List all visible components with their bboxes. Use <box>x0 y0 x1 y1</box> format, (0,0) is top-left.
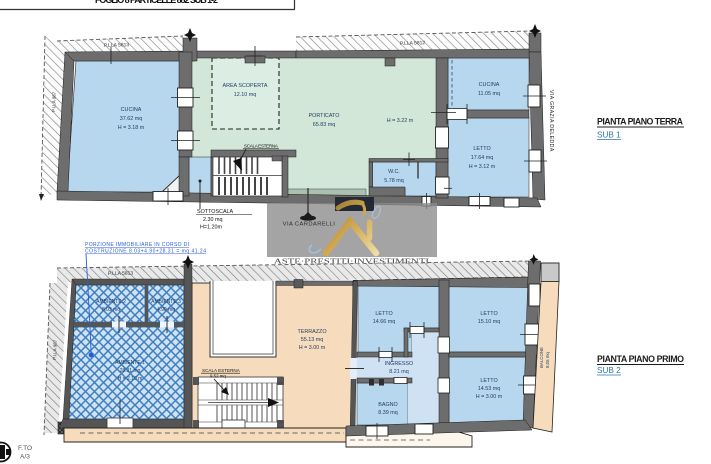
svg-text:65.83 mq: 65.83 mq <box>313 122 335 128</box>
svg-text:PIANTA PIANO PRIMO: PIANTA PIANO PRIMO <box>597 354 684 364</box>
svg-text:15.10 mq: 15.10 mq <box>478 319 500 325</box>
svg-text:SUB 2: SUB 2 <box>597 366 621 375</box>
svg-text:SCALA ESTERNA: SCALA ESTERNA <box>202 368 241 373</box>
svg-text:14.66 mq: 14.66 mq <box>373 319 395 325</box>
svg-text:14.53 mq: 14.53 mq <box>478 386 500 392</box>
svg-text:9.52 mq: 9.52 mq <box>210 373 226 378</box>
svg-text:INGRESSO: INGRESSO <box>385 361 413 367</box>
svg-text:ASTE·PRESTITI·INVESTIMENTI: ASTE·PRESTITI·INVESTIMENTI <box>274 258 430 266</box>
svg-text:BAGNO: BAGNO <box>378 402 397 408</box>
svg-text:AREA SCOPERTA: AREA SCOPERTA <box>222 83 267 89</box>
svg-text:12.10 mq: 12.10 mq <box>234 92 256 98</box>
svg-text:H=1.20m: H=1.20m <box>200 225 223 231</box>
svg-text:PIANTA PIANO TERRA: PIANTA PIANO TERRA <box>597 117 684 127</box>
svg-text:8.39 mq: 8.39 mq <box>378 410 397 416</box>
svg-text:2.30 mq: 2.30 mq <box>203 217 222 223</box>
svg-text:SCALA ESTERNA: SCALA ESTERNA <box>244 144 279 149</box>
svg-text:VIA GRAZIA DELEDDA: VIA GRAZIA DELEDDA <box>548 90 554 152</box>
svg-text:TERRAZZO: TERRAZZO <box>297 329 326 335</box>
svg-text:SOTTOSCALA: SOTTOSCALA <box>197 209 234 215</box>
svg-text:W.C.: W.C. <box>388 169 400 175</box>
svg-text:P.LLA 5812: P.LLA 5812 <box>400 40 426 47</box>
svg-text:37.62 mq: 37.62 mq <box>120 116 142 122</box>
svg-text:H = 3.00 m: H = 3.00 m <box>476 394 503 400</box>
svg-text:PORTICATO: PORTICATO <box>309 113 340 119</box>
svg-text:8.21 mq: 8.21 mq <box>389 369 408 375</box>
svg-text:SUB 1: SUB 1 <box>597 131 621 140</box>
svg-text:BALCONE: BALCONE <box>539 347 544 368</box>
svg-text:8.05 mq: 8.05 mq <box>545 352 550 368</box>
svg-text:P.LLA 5813: P.LLA 5813 <box>108 271 134 277</box>
svg-text:4.90 mq: 4.90 mq <box>157 307 175 313</box>
svg-text:F.TO: F.TO <box>18 445 32 452</box>
svg-text:FOGLIO 8 PARTICELLE 882 SUB 1-: FOGLIO 8 PARTICELLE 882 SUB 1-2 <box>95 0 218 5</box>
svg-text:AMBIENTE 2: AMBIENTE 2 <box>96 299 126 305</box>
svg-text:17.64 mq: 17.64 mq <box>471 155 493 161</box>
svg-text:A/3: A/3 <box>20 454 30 461</box>
svg-text:LETTO: LETTO <box>473 146 490 152</box>
svg-text:CUCINA: CUCINA <box>121 107 142 113</box>
svg-text:LETTO: LETTO <box>375 311 392 317</box>
svg-text:H = 3.00 m: H = 3.00 m <box>299 345 326 351</box>
svg-text:LETTO: LETTO <box>480 311 497 317</box>
svg-text:55.13 mq: 55.13 mq <box>301 337 323 343</box>
svg-text:P.LLA 987: P.LLA 987 <box>52 339 58 360</box>
svg-text:AMBIENTE 3: AMBIENTE 3 <box>151 299 181 305</box>
svg-text:H = 3.12 m: H = 3.12 m <box>469 164 496 170</box>
svg-text:8.03 mq: 8.03 mq <box>102 307 120 313</box>
svg-text:5.78 mq: 5.78 mq <box>384 178 403 184</box>
svg-text:LETTO: LETTO <box>480 378 497 384</box>
svg-text:VIA CARDARELLI: VIA CARDARELLI <box>283 222 336 228</box>
svg-text:28.31 mq: 28.31 mq <box>120 368 141 374</box>
svg-text:H = 2.10 m: H = 2.10 m <box>118 376 143 382</box>
svg-text:P.LLA 987: P.LLA 987 <box>51 91 57 112</box>
svg-text:H = 3.18 m: H = 3.18 m <box>118 125 145 131</box>
svg-text:AMBIENTE 1: AMBIENTE 1 <box>115 360 145 366</box>
svg-text:H = 3.22 m: H = 3.22 m <box>387 118 414 124</box>
svg-text:CUCINA: CUCINA <box>479 82 500 88</box>
svg-text:11.05 mq: 11.05 mq <box>478 91 500 97</box>
svg-text:P.LLA 5813: P.LLA 5813 <box>104 42 130 49</box>
